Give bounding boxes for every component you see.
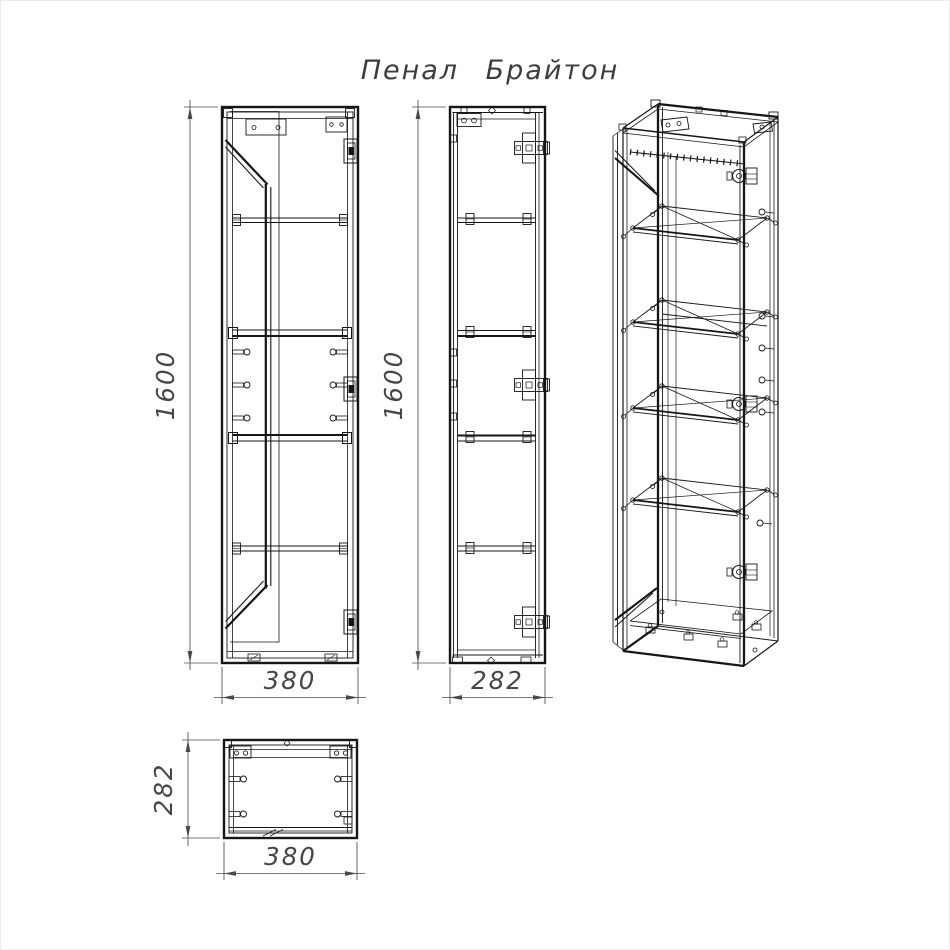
iso-hinges: [727, 168, 757, 580]
isometric-view: [613, 100, 778, 666]
front-carcass-outline: [222, 107, 358, 663]
iso-glass-shelves: [622, 204, 778, 519]
hinge-top: [727, 168, 757, 184]
iso-open-door: [613, 129, 659, 650]
glass-shelf-1: [622, 204, 778, 247]
dimension-front-width: 380: [214, 666, 366, 704]
wall-bracket-right: [326, 117, 347, 132]
glass-shelf-4: [622, 476, 778, 519]
open-door-front: [226, 112, 280, 643]
wall-bracket-left: [246, 119, 286, 135]
hinge-block-bottom: [344, 610, 357, 634]
front-view: [222, 107, 358, 663]
iso-screws: [757, 209, 774, 526]
shelf-1: [233, 215, 348, 226]
dim-text-top-width: 380: [264, 842, 317, 871]
bottom-fittings-front: [248, 654, 337, 661]
shelf-2-fixed: [229, 328, 352, 339]
dim-text-front-width: 380: [264, 666, 317, 695]
shelf-pins: [233, 349, 348, 421]
topview-pins: [229, 776, 352, 824]
dimension-top-width: 380: [216, 842, 365, 880]
hinge-bottom: [727, 564, 757, 580]
drawing-title: Пенал Брайтон: [361, 55, 620, 86]
hinge-block-middle: [344, 377, 357, 401]
dimension-top-depth: 282: [149, 732, 220, 846]
hinge-middle: [727, 396, 757, 412]
side-view: [450, 107, 550, 664]
dim-text-top-depth: 282: [149, 763, 178, 816]
shelf-3-fixed: [229, 433, 352, 444]
drawing-sheet: Пенал Брайтон: [0, 0, 950, 950]
shelf-4: [233, 543, 348, 554]
hinge-block-top: [344, 139, 357, 163]
door-top-view: [229, 828, 352, 837]
dimension-side-height: 1600: [379, 100, 446, 670]
dimension-side-depth: 282: [442, 666, 553, 704]
dim-text-front-height: 1600: [151, 350, 180, 420]
iso-carcass: [623, 104, 778, 666]
top-view: [224, 740, 357, 838]
glass-shelf-3: [622, 384, 778, 427]
wall-bracket-side-top: [457, 114, 481, 127]
glass-shelf-2: [622, 298, 778, 341]
technical-drawing: Пенал Брайтон: [0, 0, 950, 950]
side-carcass-outline: [450, 107, 545, 663]
dim-text-side-depth: 282: [471, 666, 524, 695]
dimension-front-height: 1600: [151, 100, 218, 670]
side-shelves: [458, 214, 536, 554]
dim-text-side-height: 1600: [379, 350, 408, 420]
